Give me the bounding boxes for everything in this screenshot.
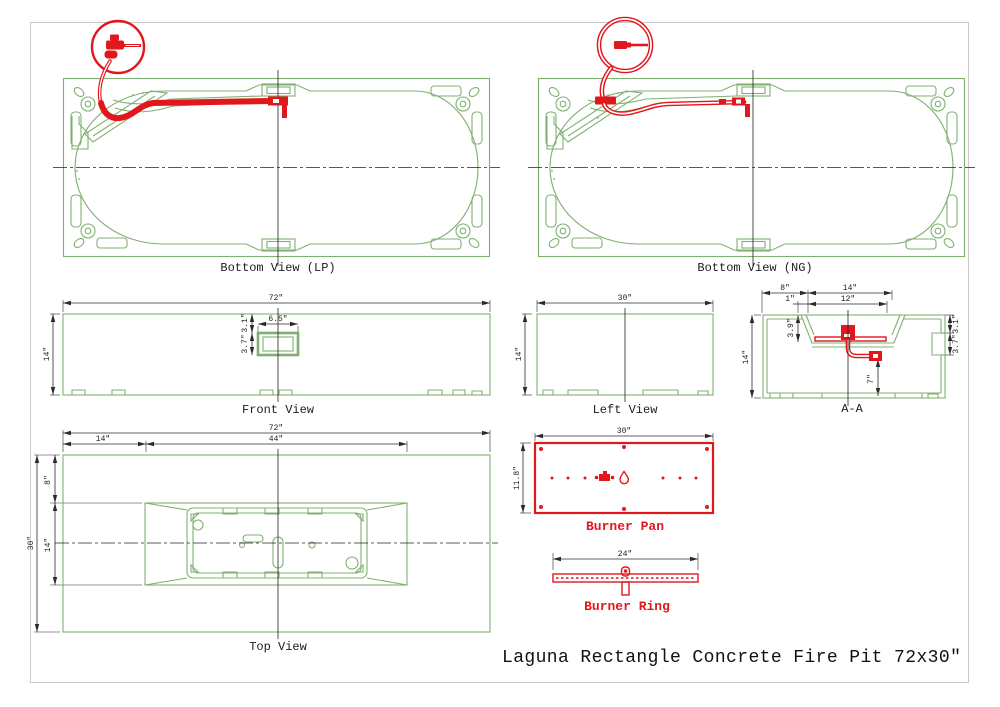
svg-text:14″: 14″: [43, 347, 52, 361]
svg-text:72″: 72″: [269, 424, 283, 433]
top-view-drawing: 72″ 14″ 44″ 30″ 8″ 14″: [30, 425, 505, 660]
pan-pilot-cutout: [620, 472, 628, 484]
left-dimensions: 30″ 14″: [515, 294, 713, 395]
svg-text:14″: 14″: [843, 284, 857, 293]
regulator-icon: [105, 35, 142, 59]
section-aa-drawing: 8″ 14″ 1″ 12″ 14″ 3.9″ 7″ 3.1″ 3.7″: [745, 282, 995, 417]
svg-text:44″: 44″: [269, 435, 283, 444]
svg-text:14″: 14″: [742, 350, 751, 364]
drawing-sheet: Bottom View (LP) Bottom View (NG): [0, 0, 1000, 707]
svg-text:30″: 30″: [618, 294, 632, 303]
ng-inlet-fitting-icon: [614, 41, 648, 49]
svg-text:3.7″: 3.7″: [952, 334, 961, 353]
svg-text:11.8″: 11.8″: [513, 466, 522, 490]
ring-outline: [553, 567, 698, 595]
pan-dimensions: 30″ 11.8″: [513, 427, 713, 513]
top-view-label: Top View: [249, 640, 307, 654]
pan-outline: [535, 443, 713, 513]
svg-text:24″: 24″: [618, 550, 632, 559]
front-view-label: Front View: [242, 403, 314, 417]
lp-gas-assembly: [92, 21, 288, 118]
ng-gas-assembly: [595, 19, 750, 117]
svg-text:14″: 14″: [515, 347, 524, 361]
top-outline: [63, 455, 490, 632]
left-view-label: Left View: [593, 403, 658, 417]
svg-text:14″: 14″: [96, 435, 110, 444]
pan-screw-holes: [539, 445, 709, 511]
drawing-title: Laguna Rectangle Concrete Fire Pit 72x30…: [502, 648, 961, 668]
bottom-view-lp-drawing: [40, 14, 505, 274]
pan-hub-fitting: [595, 471, 615, 481]
svg-text:7″: 7″: [867, 374, 876, 384]
burner-ring-label: Burner Ring: [584, 599, 670, 614]
svg-text:3.9″: 3.9″: [787, 318, 796, 337]
bottom-view-ng-label: Bottom View (NG): [697, 261, 812, 275]
bottom-view-ng-drawing: [515, 14, 980, 274]
svg-text:3.7″: 3.7″: [241, 334, 250, 353]
front-outline: [63, 314, 490, 395]
svg-text:72″: 72″: [269, 294, 283, 303]
top-pan-cutouts: [193, 520, 358, 569]
burner-pan-label: Burner Pan: [586, 519, 664, 534]
svg-text:30″: 30″: [27, 536, 36, 550]
svg-text:3.1″: 3.1″: [241, 313, 250, 332]
ring-center-fitting: [622, 567, 630, 595]
section-aa-label: A-A: [841, 402, 863, 416]
svg-text:8″: 8″: [44, 475, 53, 485]
svg-text:12″: 12″: [841, 295, 855, 304]
svg-text:3.1″: 3.1″: [952, 314, 961, 333]
svg-text:8″: 8″: [780, 284, 790, 293]
svg-text:14″: 14″: [44, 538, 53, 552]
svg-text:30″: 30″: [617, 427, 631, 436]
front-dimensions: 72″ 14″ 6.5″ 3.1″ 3.7″: [43, 294, 490, 395]
bottom-view-lp-label: Bottom View (LP): [220, 261, 335, 275]
svg-text:1″: 1″: [785, 295, 795, 304]
